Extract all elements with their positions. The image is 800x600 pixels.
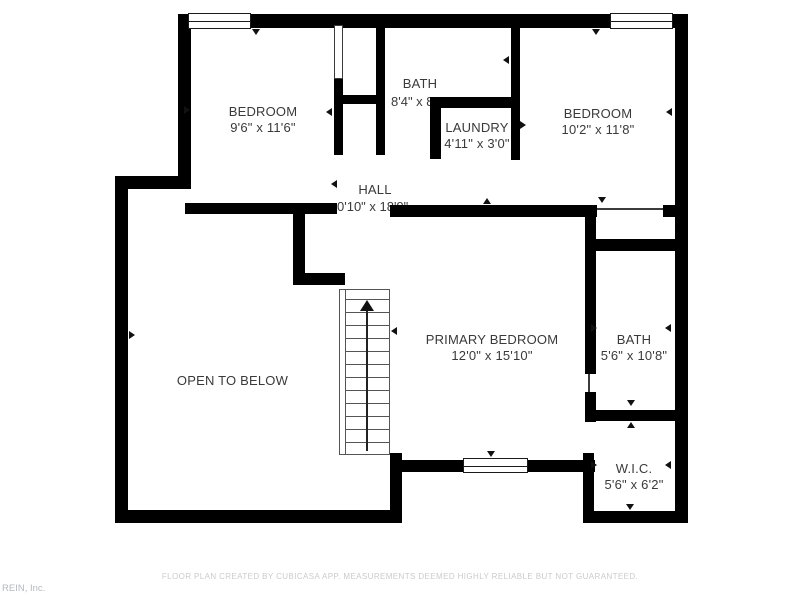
door-marker-icon: [184, 106, 190, 114]
door-marker-icon: [520, 121, 526, 129]
room-name: BEDROOM: [564, 106, 633, 122]
stair-stringer-line: [345, 290, 346, 454]
stair-direction-arrow: [366, 310, 368, 451]
window-primary-bottom: [463, 458, 528, 473]
room-dims: 4'11" x 3'0": [444, 136, 510, 152]
attribution-watermark: REIN, Inc.: [2, 583, 45, 594]
room-dims: 10'2" x 11'8": [562, 122, 635, 138]
wall-bath2-top: [585, 239, 688, 251]
stair-arrow-head-icon: [360, 300, 374, 311]
room-label-bedroom-left: BEDROOM 9'6" x 11'6": [193, 104, 333, 136]
room-name: HALL: [358, 182, 391, 198]
room-label-bath-right: BATH 5'6" x 10'8": [598, 332, 670, 364]
door-marker-icon: [591, 461, 597, 469]
door-opening-bath2-line: [588, 374, 590, 392]
room-dims: 5'6" x 6'2": [604, 477, 663, 493]
room-name: BEDROOM: [229, 104, 298, 120]
window-top-right: [610, 13, 673, 29]
wall-hall-jog-horiz: [293, 273, 345, 285]
room-dims: 12'0" x 15'10": [451, 348, 532, 364]
staircase: [339, 289, 390, 455]
door-marker-icon: [627, 422, 635, 428]
room-dims: 9'6" x 11'6": [230, 120, 296, 136]
room-label-primary-bedroom: PRIMARY BEDROOM 12'0" x 15'10": [402, 332, 582, 364]
wall-left-upper: [178, 14, 191, 187]
room-label-bath-top: BATH: [383, 76, 457, 92]
wall-laundry-left: [430, 97, 441, 159]
door-opening-bedroom2-line: [597, 208, 663, 210]
room-label-open-to-below: OPEN TO BELOW: [150, 373, 315, 389]
door-marker-icon: [391, 327, 397, 335]
wall-hall-south: [185, 203, 337, 214]
wall-bedroom2-bottom-stub: [663, 205, 675, 217]
wall-bottom-open-to-below: [115, 510, 402, 523]
wall-bath-top-left: [376, 26, 385, 155]
door-marker-icon: [129, 331, 135, 339]
door-marker-icon: [487, 451, 495, 457]
wall-wic-bottom: [583, 511, 688, 523]
door-marker-icon: [598, 197, 606, 203]
wall-right-outer: [675, 14, 688, 523]
wall-primary-top: [390, 205, 597, 217]
door-marker-icon: [666, 108, 672, 116]
door-marker-icon: [592, 29, 600, 35]
door-marker-icon: [665, 461, 671, 469]
wall-closet-stub: [342, 95, 378, 104]
room-label-wic: W.I.C. 5'6" x 6'2": [596, 461, 672, 493]
door-marker-icon: [503, 56, 509, 64]
door-marker-icon: [591, 324, 597, 332]
room-name: BATH: [403, 76, 438, 92]
room-dims-bath-top: 8'4" x 8: [391, 94, 434, 109]
wall-left-lower: [115, 176, 128, 523]
door-opening-bedroom1: [334, 25, 343, 79]
wall-bath-wic-divider: [585, 410, 688, 421]
door-marker-icon: [331, 180, 337, 188]
room-name: W.I.C.: [616, 461, 653, 477]
wall-bedroom1-right: [334, 78, 343, 155]
room-label-laundry: LAUNDRY 4'11" x 3'0": [438, 120, 516, 152]
wall-laundry-top: [430, 97, 520, 108]
room-dims: 5'6" x 10'8": [601, 348, 667, 364]
door-marker-icon: [483, 198, 491, 204]
door-marker-icon: [252, 29, 260, 35]
window-top-left: [188, 13, 251, 29]
door-marker-icon: [326, 108, 332, 116]
door-marker-icon: [627, 400, 635, 406]
room-name: LAUNDRY: [445, 120, 508, 136]
disclaimer-text: FLOOR PLAN CREATED BY CUBICASA APP. MEAS…: [0, 572, 800, 581]
wall-bedroom2-left: [511, 14, 520, 160]
room-label-bedroom-right: BEDROOM 10'2" x 11'8": [528, 106, 668, 138]
room-name: PRIMARY BEDROOM: [426, 332, 559, 348]
room-label-hall: HALL: [340, 182, 410, 198]
floor-plan: BEDROOM 9'6" x 11'6" BATH 8'4" x 8 LAUND…: [0, 0, 800, 600]
door-marker-icon: [626, 504, 634, 510]
room-name: OPEN TO BELOW: [177, 373, 288, 389]
room-name: BATH: [617, 332, 652, 348]
door-marker-icon: [665, 324, 671, 332]
wall-bath2-left-upper: [585, 217, 596, 374]
